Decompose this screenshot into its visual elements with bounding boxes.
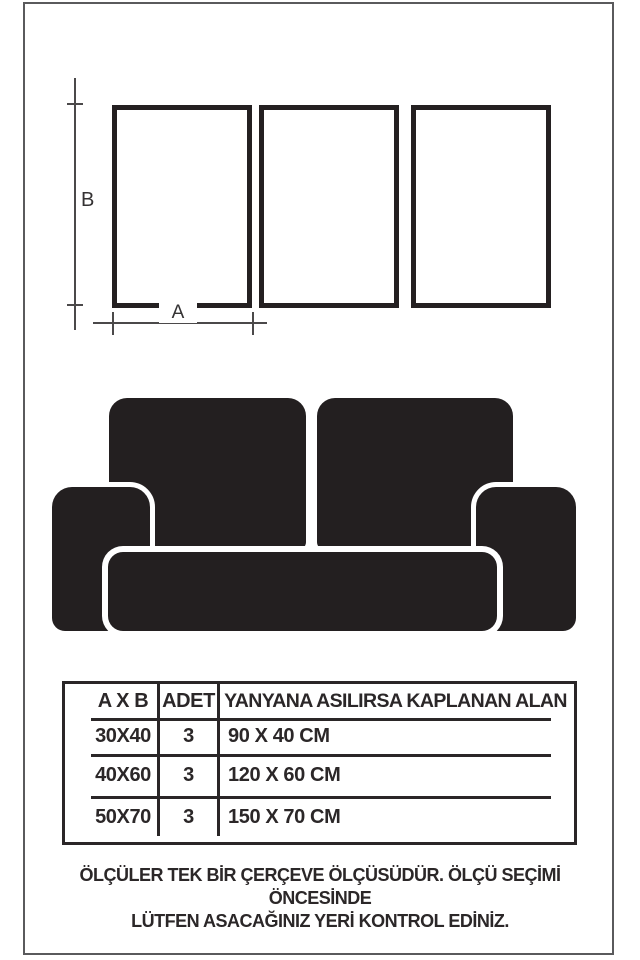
sofa-seat-icon	[108, 552, 497, 631]
picture-frame-2	[259, 105, 399, 308]
table-header-quantity: ADET	[160, 684, 217, 718]
disclaimer-line-2: LÜTFEN ASACAĞINIZ YERİ KONTROL EDİNİZ.	[33, 910, 607, 933]
height-dimension-tick-top	[67, 103, 83, 105]
table-cell-area-2: 120 X 60 CM	[220, 754, 579, 796]
table-cell-qty-1: 3	[160, 718, 217, 754]
width-dimension-tick-right	[252, 312, 254, 335]
table-cell-size-3: 50X70	[65, 796, 169, 839]
picture-frame-1	[112, 105, 252, 308]
table-header-size: A X B	[65, 684, 169, 718]
height-dimension-tick-bottom	[67, 304, 83, 306]
disclaimer-text: ÖLÇÜLER TEK BİR ÇERÇEVE ÖLÇÜSÜDÜR. ÖLÇÜ …	[33, 864, 607, 933]
table-cell-area-3: 150 X 70 CM	[220, 796, 579, 839]
sofa-icon	[52, 398, 576, 634]
table-cell-size-2: 40X60	[65, 754, 169, 796]
table-cell-area-1: 90 X 40 CM	[220, 718, 579, 754]
table-cell-size-1: 30X40	[65, 718, 169, 754]
height-dimension-line	[74, 78, 76, 330]
table-cell-qty-3: 3	[160, 796, 217, 839]
width-dimension-tick-left	[112, 312, 114, 335]
picture-frame-3	[411, 105, 551, 308]
table-header-covered-area: YANYANA ASILIRSA KAPLANAN ALAN	[220, 684, 571, 718]
width-dimension-label: A	[159, 303, 197, 323]
table-cell-qty-2: 3	[160, 754, 217, 796]
size-table: A X B ADET YANYANA ASILIRSA KAPLANAN ALA…	[62, 681, 577, 845]
disclaimer-line-1: ÖLÇÜLER TEK BİR ÇERÇEVE ÖLÇÜSÜDÜR. ÖLÇÜ …	[33, 864, 607, 910]
height-dimension-label: B	[79, 190, 96, 210]
